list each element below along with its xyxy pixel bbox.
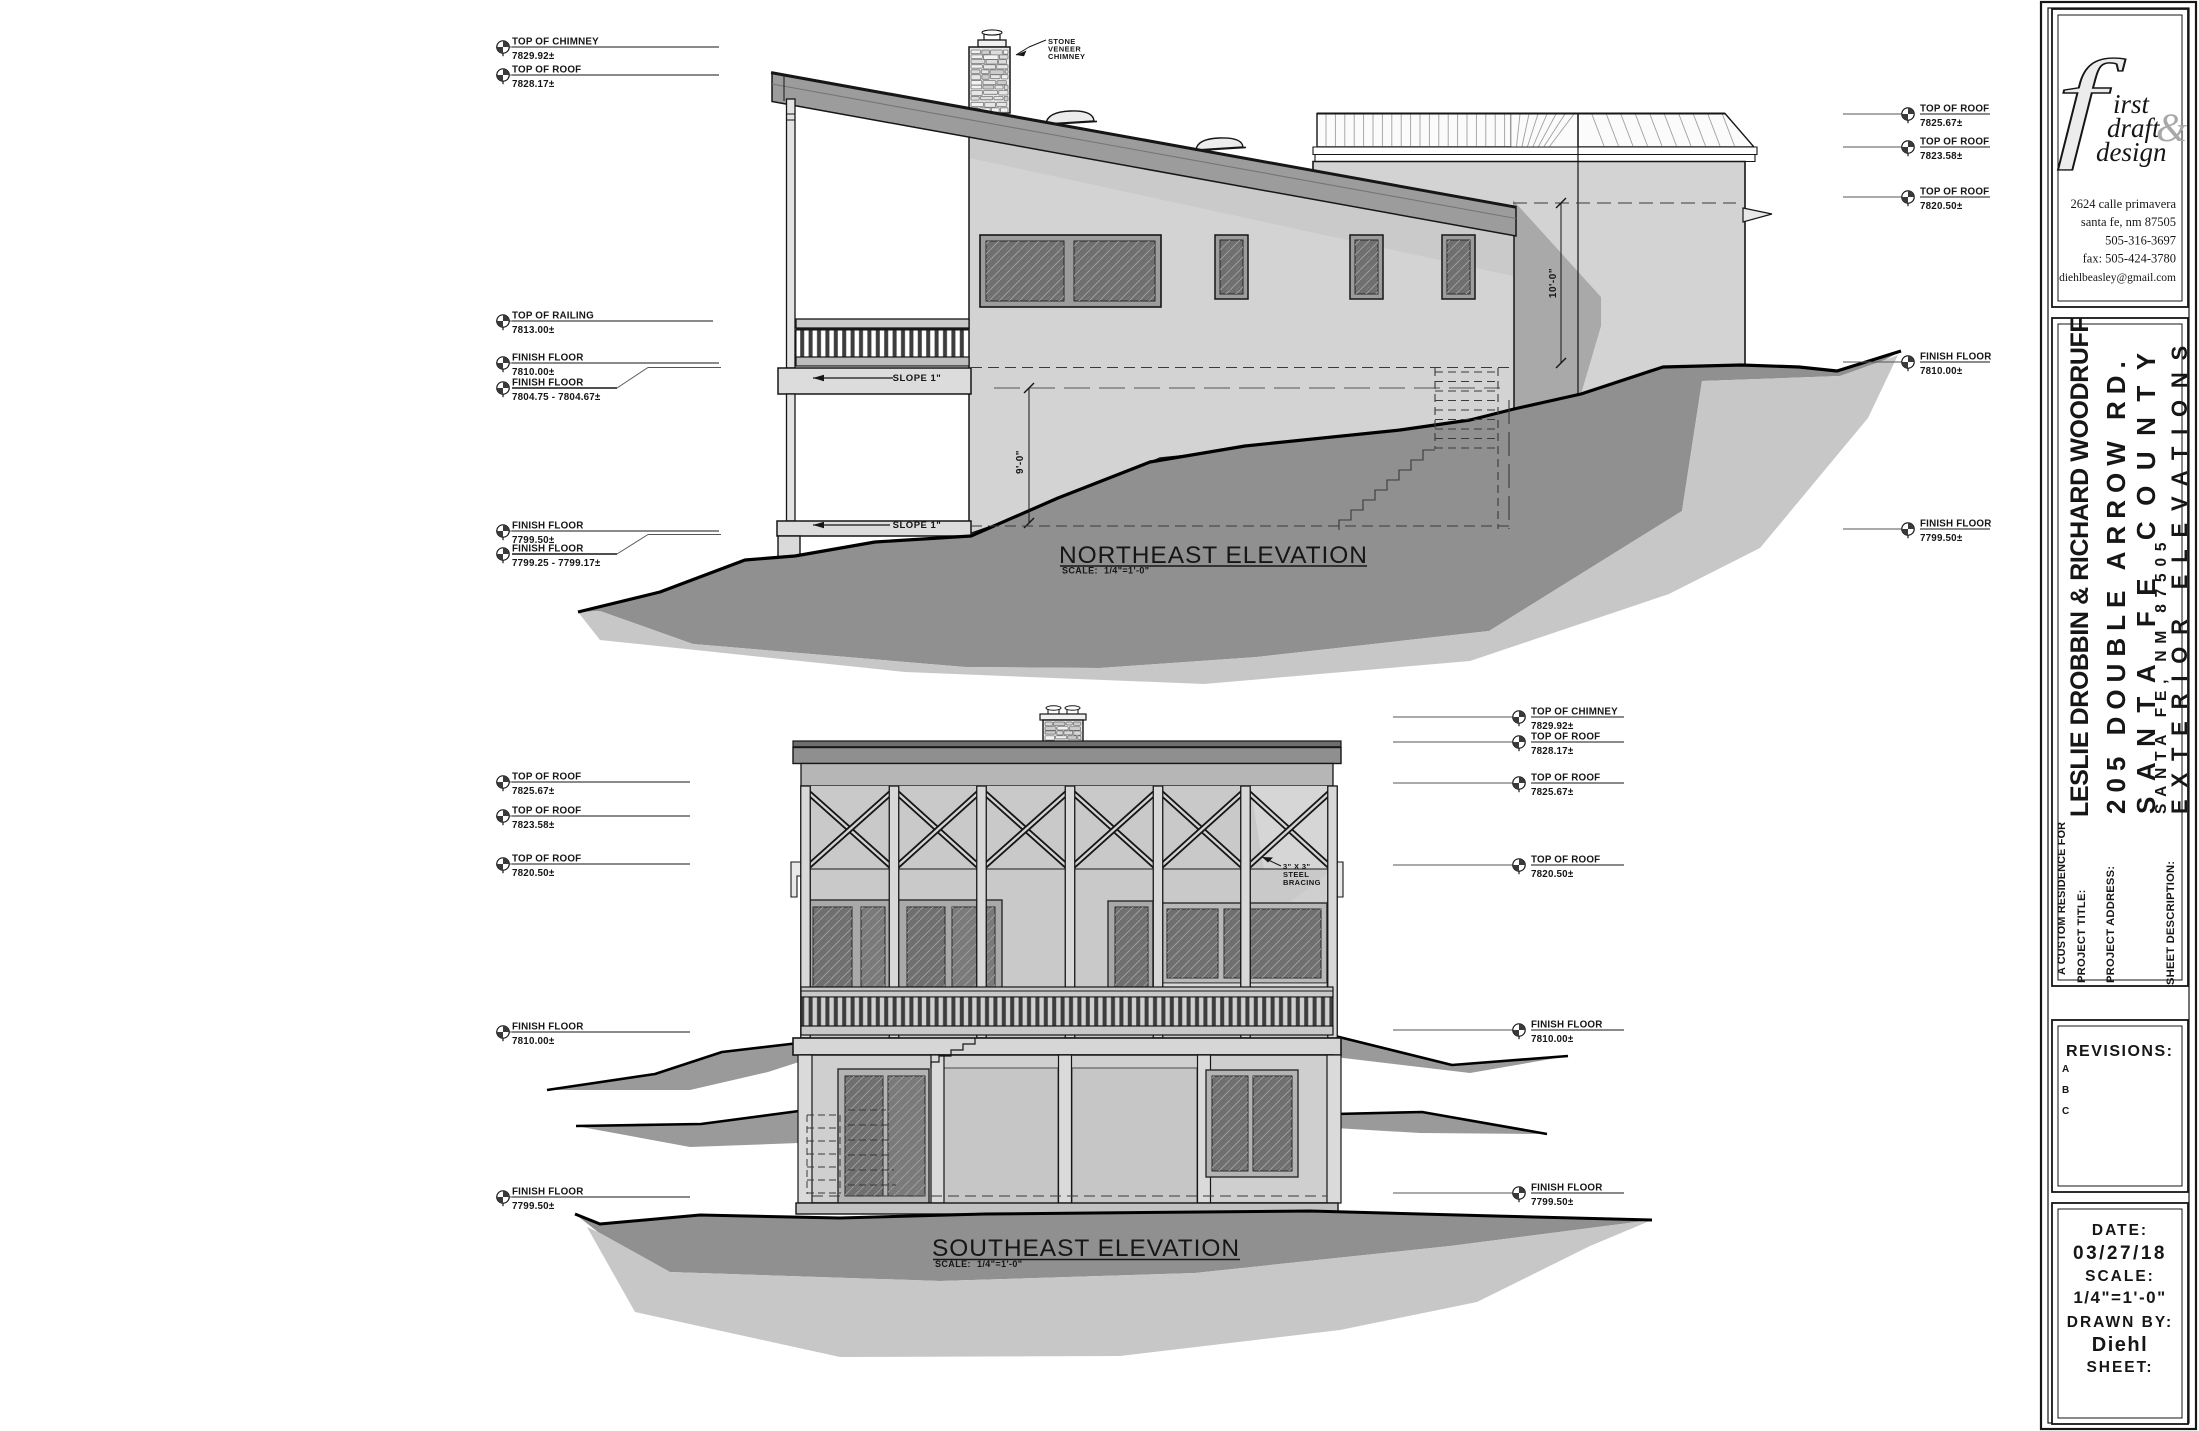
svg-text:diehlbeasley@gmail.com: diehlbeasley@gmail.com (2059, 272, 2176, 284)
svg-text:7820.50±: 7820.50± (512, 868, 555, 879)
svg-text:7804.75 - 7804.67±: 7804.75 - 7804.67± (512, 392, 601, 403)
svg-text:A CUSTOM RESIDENCE FOR: A CUSTOM RESIDENCE FOR (2056, 822, 2068, 975)
svg-text:7799.50±: 7799.50± (512, 1201, 555, 1212)
svg-text:SLOPE 1": SLOPE 1" (893, 520, 942, 531)
svg-text:7820.50±: 7820.50± (1920, 201, 1963, 212)
svg-text:fax: 505-424-3780: fax: 505-424-3780 (2083, 252, 2176, 266)
svg-text:FINISH FLOOR: FINISH FLOOR (1920, 519, 1992, 530)
svg-text:FINISH FLOOR: FINISH FLOOR (512, 521, 584, 532)
svg-text:SCALE:: SCALE: (2085, 1268, 2155, 1285)
svg-text:TOP OF ROOF: TOP OF ROOF (512, 772, 581, 783)
svg-text:&: & (2156, 105, 2188, 150)
svg-text:7820.50±: 7820.50± (1531, 869, 1574, 880)
svg-text:7799.50±: 7799.50± (1920, 533, 1963, 544)
svg-text:7823.58±: 7823.58± (1920, 151, 1963, 162)
svg-text:7825.67±: 7825.67± (1531, 787, 1574, 798)
svg-text:10'-0": 10'-0" (1548, 268, 1559, 298)
svg-text:DRAWN BY:: DRAWN BY: (2067, 1314, 2173, 1331)
svg-text:7825.67±: 7825.67± (1920, 118, 1963, 129)
svg-text:REVISIONS:: REVISIONS: (2066, 1043, 2173, 1060)
svg-text:SCALE:: SCALE: (935, 1259, 971, 1269)
svg-text:7823.58±: 7823.58± (512, 820, 555, 831)
svg-text:C: C (2062, 1106, 2070, 1117)
svg-text:DATE:: DATE: (2092, 1222, 2148, 1239)
svg-text:FINISH FLOOR: FINISH FLOOR (1531, 1183, 1603, 1194)
svg-text:TOP OF ROOF: TOP OF ROOF (1531, 773, 1600, 784)
svg-text:TOP OF ROOF: TOP OF ROOF (512, 806, 581, 817)
svg-text:7810.00±: 7810.00± (1531, 1034, 1574, 1045)
svg-text:7829.92±: 7829.92± (1531, 721, 1574, 732)
svg-text:7810.00±: 7810.00± (512, 367, 555, 378)
svg-text:7828.17±: 7828.17± (1531, 746, 1574, 757)
svg-text:TOP OF ROOF: TOP OF ROOF (1531, 732, 1600, 743)
svg-text:505-316-3697: 505-316-3697 (2105, 233, 2176, 247)
svg-text:santa fe, nm 87505: santa fe, nm 87505 (2081, 215, 2176, 229)
svg-text:TOP OF CHIMNEY: TOP OF CHIMNEY (1531, 707, 1618, 718)
svg-text:SHEET:: SHEET: (2086, 1359, 2153, 1376)
svg-text:TOP OF ROOF: TOP OF ROOF (1531, 855, 1600, 866)
svg-text:9'-0": 9'-0" (1015, 450, 1026, 474)
svg-text:7799.25 - 7799.17±: 7799.25 - 7799.17± (512, 558, 601, 569)
svg-text:SHEET DESCRIPTION:: SHEET DESCRIPTION: (2165, 861, 2177, 985)
svg-text:FINISH FLOOR: FINISH FLOOR (1920, 352, 1992, 363)
svg-text:FINISH FLOOR: FINISH FLOOR (1531, 1020, 1603, 1031)
svg-text:1/4"=1'-0": 1/4"=1'-0" (977, 1259, 1022, 1269)
svg-text:7810.00±: 7810.00± (1920, 366, 1963, 377)
svg-text:TOP OF ROOF: TOP OF ROOF (512, 65, 581, 76)
svg-text:PROJECT TITLE:: PROJECT TITLE: (2076, 889, 2088, 983)
svg-text:SLOPE 1": SLOPE 1" (893, 373, 942, 384)
svg-text:TOP OF ROOF: TOP OF ROOF (512, 854, 581, 865)
svg-text:SCALE:: SCALE: (1062, 566, 1098, 576)
svg-text:7828.17±: 7828.17± (512, 79, 555, 90)
svg-text:LESLIE DROBBIN & RICHARD WOODR: LESLIE DROBBIN & RICHARD WOODRUFF (2066, 318, 2094, 817)
svg-text:7799.50±: 7799.50± (1531, 1197, 1574, 1208)
svg-text:SOUTHEAST ELEVATION: SOUTHEAST ELEVATION (932, 1235, 1240, 1262)
svg-text:7829.92±: 7829.92± (512, 51, 555, 62)
svg-text:A: A (2062, 1064, 2070, 1075)
svg-text:TOP OF RAILING: TOP OF RAILING (512, 311, 594, 322)
svg-text:7825.67±: 7825.67± (512, 786, 555, 797)
svg-text:Diehl: Diehl (2092, 1334, 2148, 1356)
svg-text:FINISH FLOOR: FINISH FLOOR (512, 544, 584, 555)
svg-text:205 DOUBLE ARROW RD.: 205 DOUBLE ARROW RD. (2101, 354, 2131, 814)
svg-text:03/27/18: 03/27/18 (2073, 1243, 2167, 1264)
svg-text:B: B (2062, 1085, 2070, 1096)
svg-text:FINISH FLOOR: FINISH FLOOR (512, 378, 584, 389)
svg-text:CHIMNEY: CHIMNEY (1048, 52, 1085, 61)
svg-text:1/4"=1'-0": 1/4"=1'-0" (1104, 566, 1149, 576)
svg-text:TOP OF ROOF: TOP OF ROOF (1920, 104, 1989, 115)
svg-text:FINISH FLOOR: FINISH FLOOR (512, 353, 584, 364)
svg-text:2624 calle primavera: 2624 calle primavera (2070, 197, 2176, 211)
svg-text:7810.00±: 7810.00± (512, 1036, 555, 1047)
svg-text:PROJECT ADDRESS:: PROJECT ADDRESS: (2105, 866, 2117, 983)
svg-text:TOP OF CHIMNEY: TOP OF CHIMNEY (512, 37, 599, 48)
svg-text:7813.00±: 7813.00± (512, 325, 555, 336)
svg-text:TOP OF ROOF: TOP OF ROOF (1920, 187, 1989, 198)
svg-text:FINISH FLOOR: FINISH FLOOR (512, 1022, 584, 1033)
svg-text:TOP OF ROOF: TOP OF ROOF (1920, 137, 1989, 148)
svg-text:1/4"=1'-0": 1/4"=1'-0" (2073, 1288, 2166, 1307)
svg-text:FINISH FLOOR: FINISH FLOOR (512, 1187, 584, 1198)
svg-text:BRACING: BRACING (1283, 878, 1321, 887)
svg-text:EXTERIOR ELEVATIONS: EXTERIOR ELEVATIONS (2167, 334, 2192, 814)
